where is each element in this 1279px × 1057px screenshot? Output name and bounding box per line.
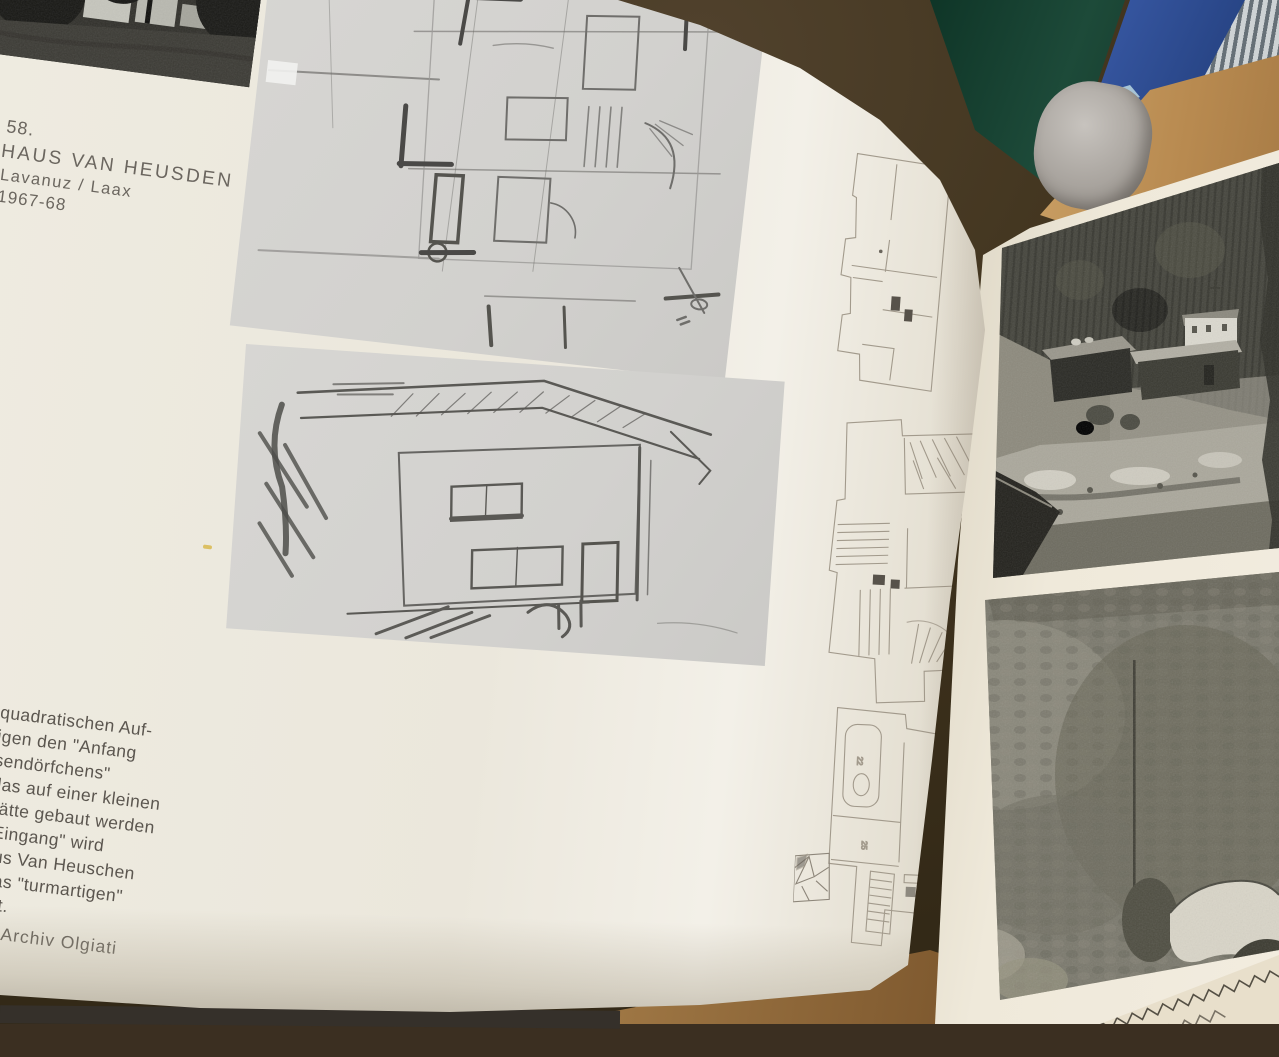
caption-block: 58. HAUS VAN HEUSDEN Lavanuz / Laax 1967…: [0, 116, 238, 237]
photo-forest-hillside: [935, 565, 1279, 1024]
yellow-speck: [203, 544, 212, 549]
sketch-sheet-floorplan: [230, 0, 771, 382]
photo-top-left-garden: [0, 0, 264, 87]
book-left-page: 58. HAUS VAN HEUSDEN Lavanuz / Laax 1967…: [0, 0, 1010, 1024]
plan-label-tub-room: 22: [855, 756, 864, 766]
plan-label-mid-room: 25: [859, 841, 868, 851]
sketch-sheet-perspective: [226, 344, 785, 666]
book-photo-scene: 58. HAUS VAN HEUSDEN Lavanuz / Laax 1967…: [0, 0, 1279, 1024]
photo-alpine-village: [990, 160, 1279, 580]
tape-mark: [266, 60, 298, 85]
